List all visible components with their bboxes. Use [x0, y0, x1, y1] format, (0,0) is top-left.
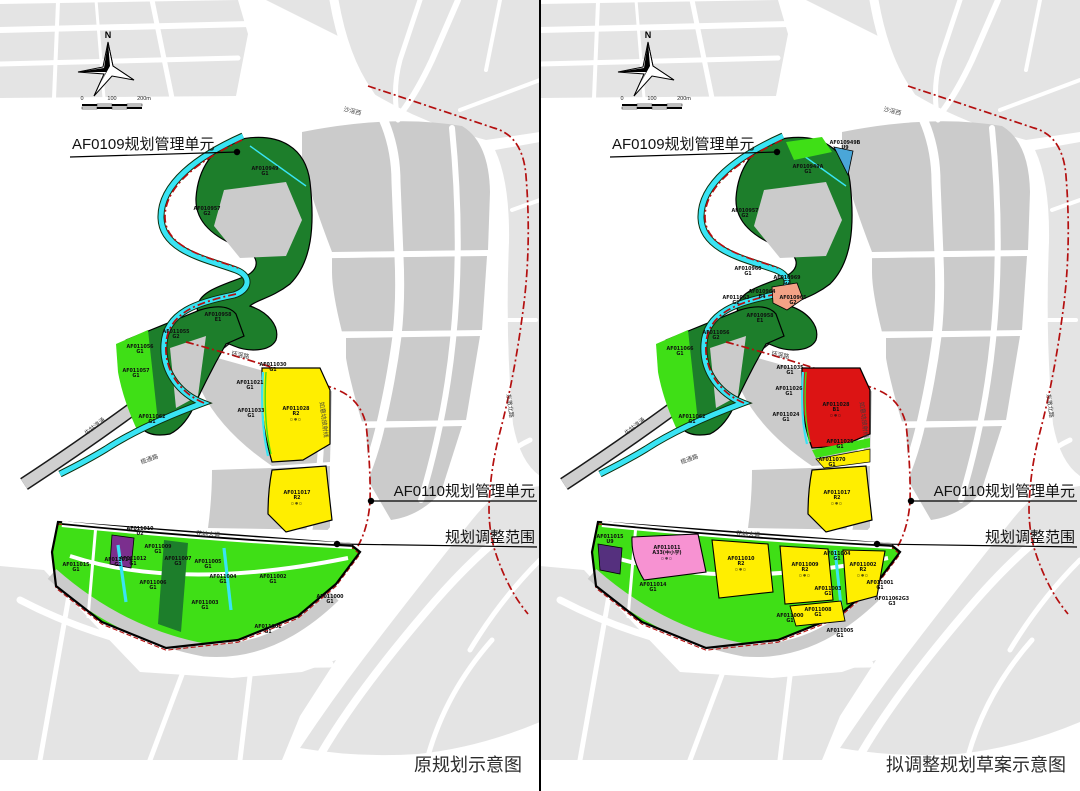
callout-dot-scope: [334, 541, 340, 547]
parcel-af011015-utility: [598, 544, 622, 574]
scale-seg: [112, 104, 127, 106]
scale-seg: [127, 104, 142, 106]
original-plan-map: AF0109规划管理单元 AF0110规划管理单元 规划调整范围 N 0 100…: [0, 0, 540, 791]
road-label: 花地大道: [736, 529, 761, 539]
parcel-label-af011062g3: AF011062G3G3: [875, 596, 909, 607]
road-label: 沙滘西: [883, 105, 902, 117]
parcel-label-af010960: AF010960G1: [734, 266, 762, 277]
proposed-plan-map: 牛牯湾涌榄通路环滘路如意坊放射线沙滘西花地大道东漖北路 AF010949AG1A…: [540, 0, 1080, 791]
scale-seg: [82, 107, 97, 109]
scale-seg: [97, 104, 112, 106]
caption-original: 原规划示意图: [414, 755, 522, 775]
scale-seg: [112, 107, 127, 109]
parcel-label-af011005: AF011005G1: [826, 628, 853, 639]
city-blocks: [495, 142, 540, 476]
callout-dot-af0110: [368, 498, 374, 504]
road-label: 榄通路: [679, 452, 699, 466]
scale-0: 0: [80, 96, 83, 102]
city-blocks: [266, 0, 540, 140]
label-af0109-unit: AF0109规划管理单元: [72, 136, 215, 153]
city-blocks: [0, 0, 248, 98]
scale-seg: [97, 107, 112, 109]
scale-seg: [127, 107, 142, 109]
compass-north-label: N: [105, 30, 112, 40]
panel-divider: [539, 0, 541, 791]
scale-100: 100: [107, 96, 116, 102]
road-label: 榄通路: [139, 452, 159, 466]
unit-blocks: [332, 256, 487, 332]
scale-200: 200m: [137, 96, 151, 102]
callout-dot-af0109: [234, 149, 240, 155]
scale-bar: 0 100 200m: [80, 96, 151, 109]
label-af0110-unit: AF0110规划管理单元: [394, 483, 535, 500]
unit-blocks: [346, 336, 480, 422]
park-inner-block: [214, 182, 302, 258]
road-label: 花地大道: [196, 529, 221, 539]
scale-seg: [82, 104, 97, 106]
planning-comparison-page: AF0109规划管理单元 AF0110规划管理单元 规划调整范围 N 0 100…: [0, 0, 1080, 791]
caption-proposed: 拟调整规划草案示意图: [886, 755, 1066, 775]
label-adjust-scope: 规划调整范围: [445, 529, 535, 546]
road-label: 沙滘西: [343, 105, 362, 117]
